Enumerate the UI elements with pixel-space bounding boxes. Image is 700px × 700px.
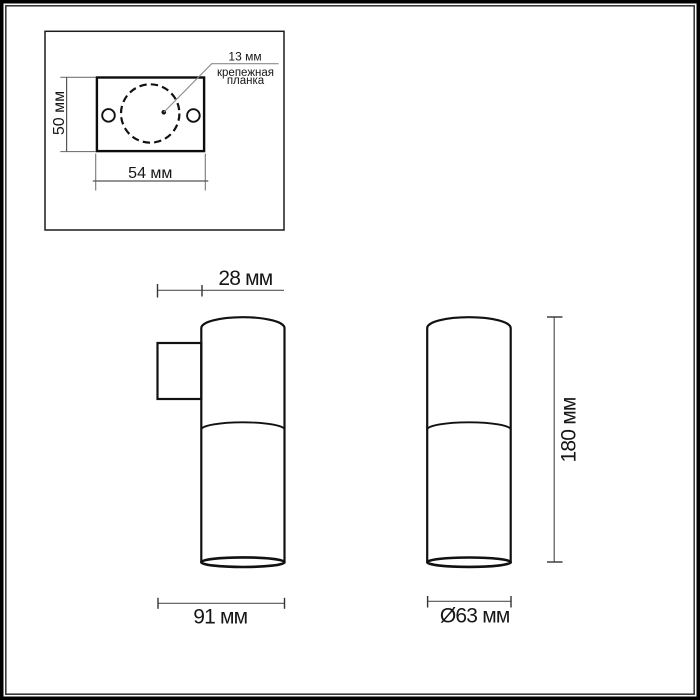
svg-text:28 мм: 28 мм	[218, 267, 272, 290]
svg-text:13 мм: 13 мм	[228, 50, 261, 64]
svg-text:91 мм: 91 мм	[193, 606, 247, 629]
svg-text:планка: планка	[227, 75, 265, 87]
svg-text:Ø63 мм: Ø63 мм	[440, 605, 510, 628]
svg-text:180 мм: 180 мм	[558, 398, 581, 463]
svg-text:50 мм: 50 мм	[51, 91, 68, 135]
svg-text:54 мм: 54 мм	[128, 165, 172, 182]
